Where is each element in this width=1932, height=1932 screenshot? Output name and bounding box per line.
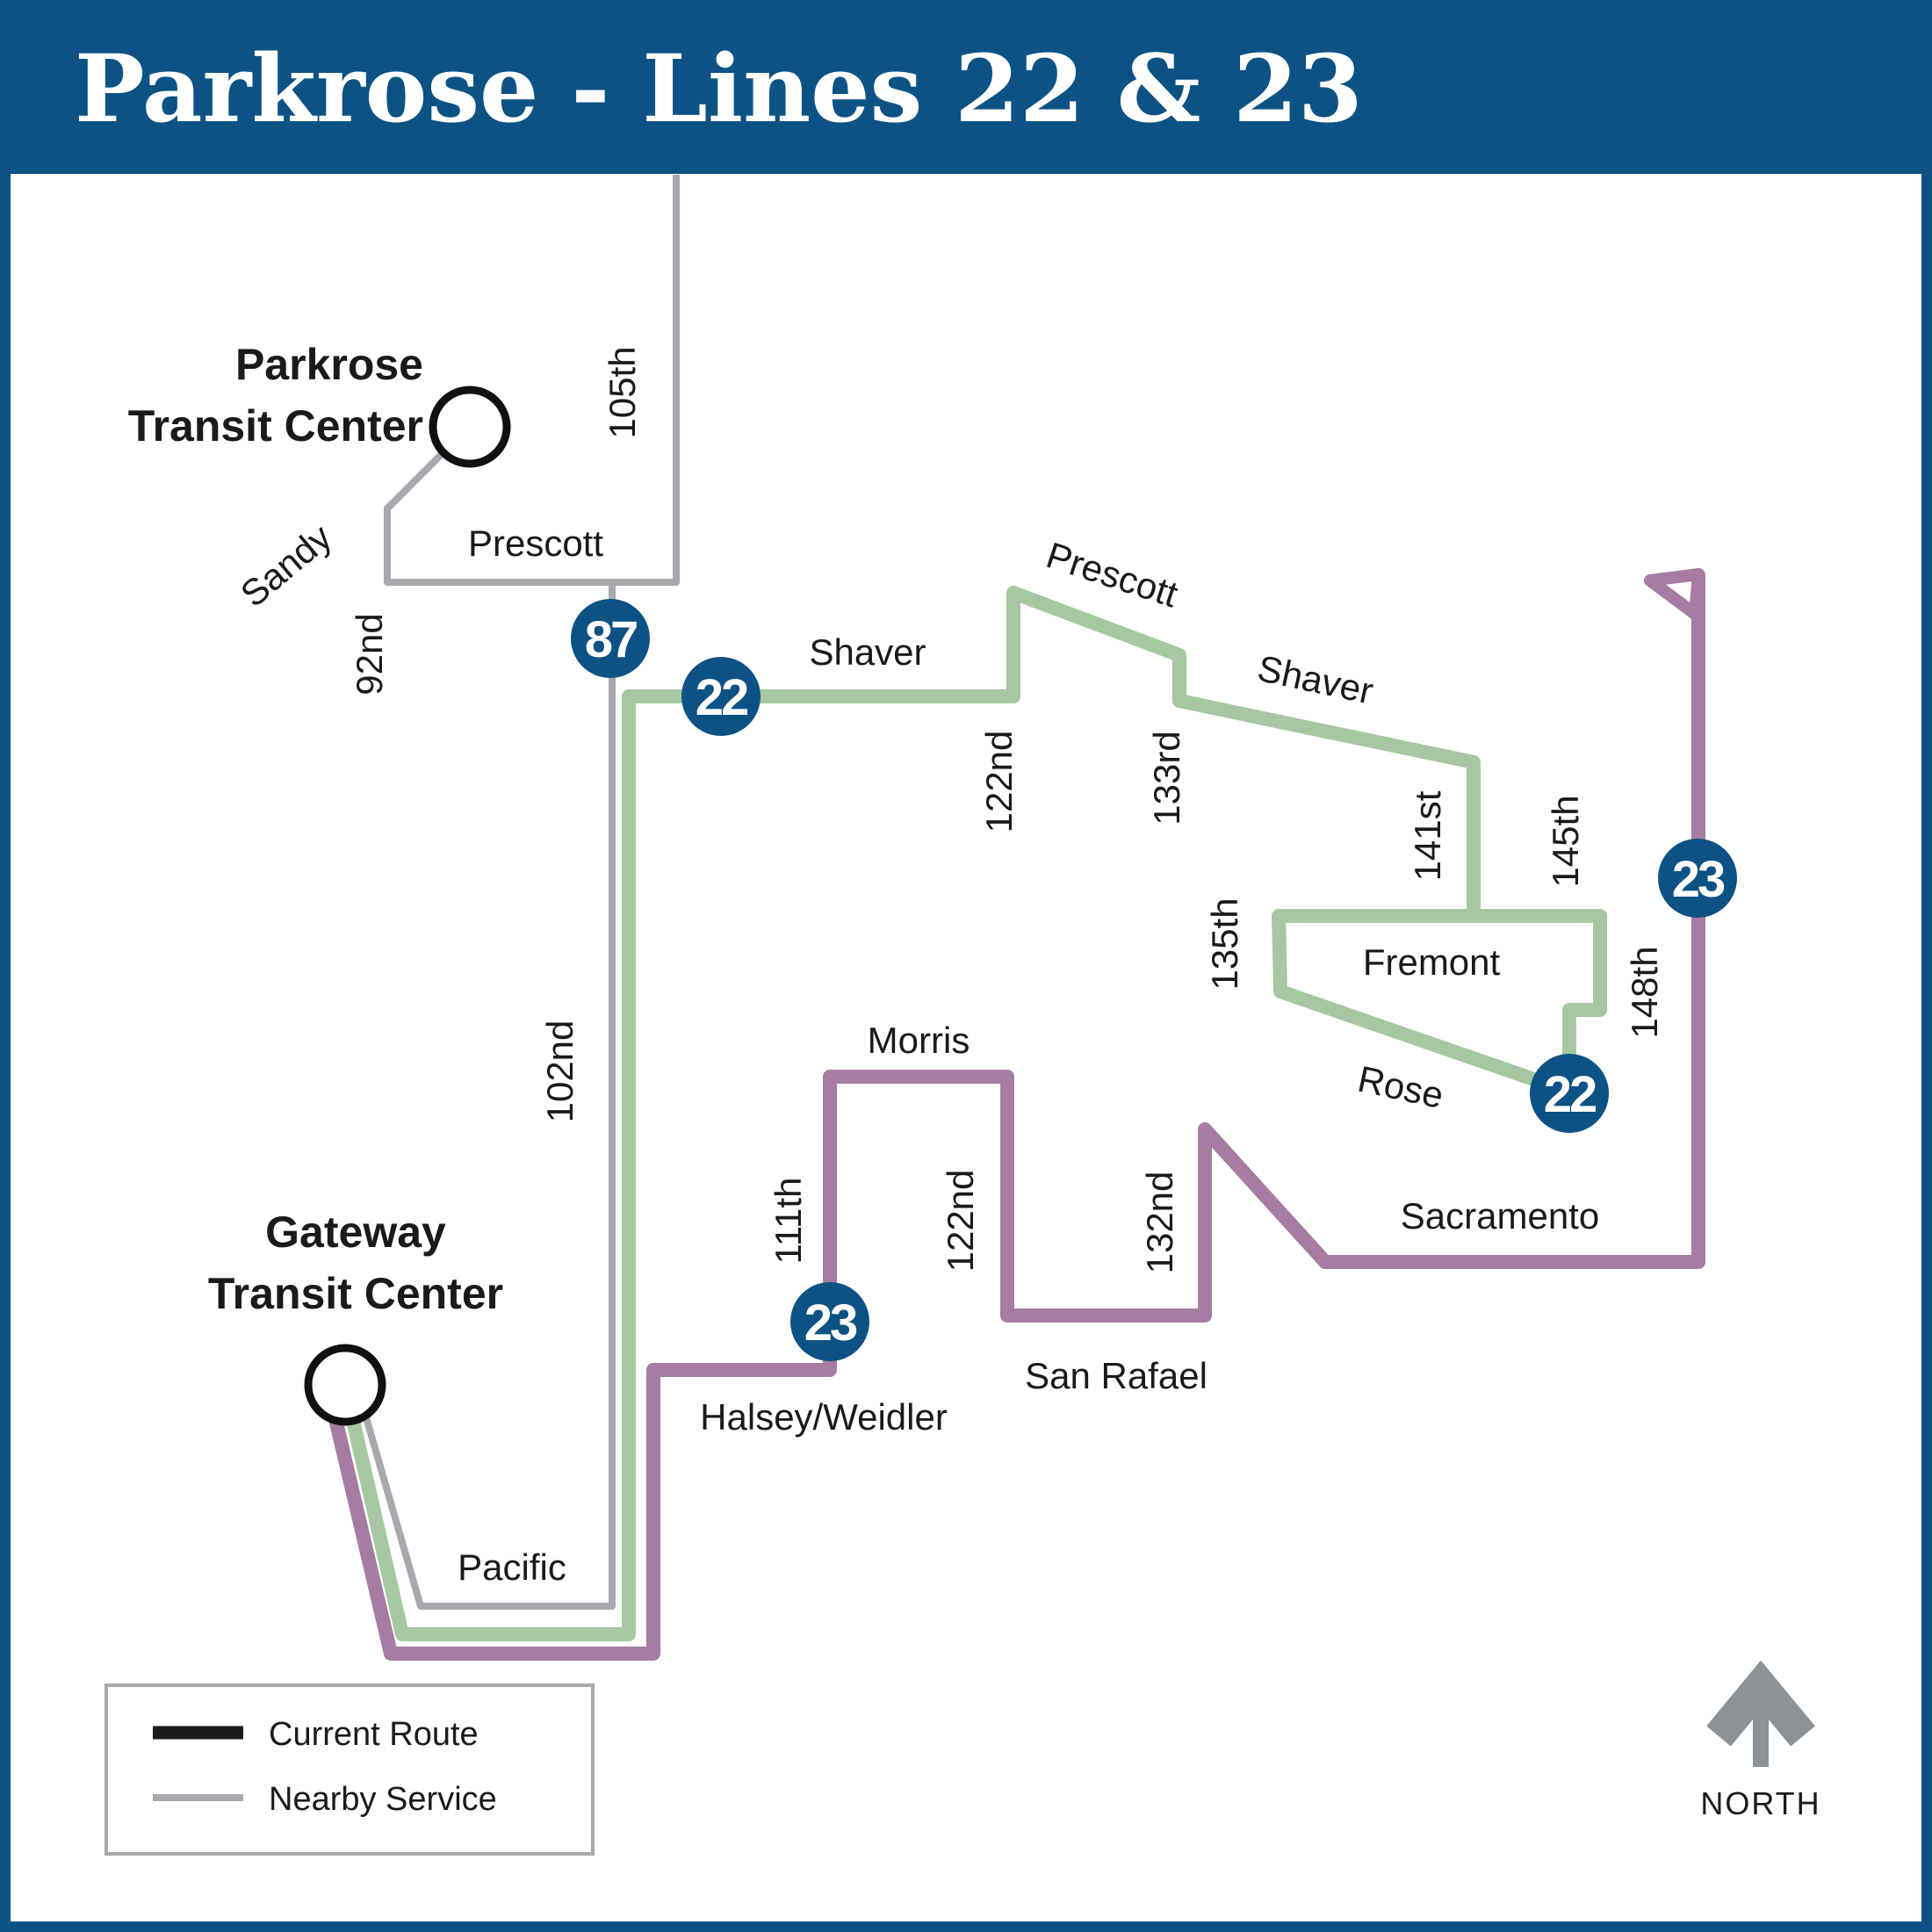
street-132nd: 132nd [1139,1171,1180,1274]
street-105th: 105th [602,346,643,438]
street-sacramento: Sacramento [1401,1195,1599,1236]
street-92nd: 92nd [349,613,390,695]
legend-box [106,1685,593,1854]
legend: Current Route Nearby Service [106,1685,593,1854]
street-122nd-north: 122nd [978,731,1020,833]
badge-22-west-label: 22 [696,669,747,726]
parkrose-transit-center-marker [433,390,507,464]
badge-23-east-label: 23 [1672,851,1725,908]
street-halsey-weidler: Halsey/Weidler [700,1396,948,1438]
gateway-transit-center-marker [308,1348,382,1422]
street-135th: 135th [1204,898,1245,990]
parkrose-tc-label-line2: Transit Center [128,401,423,451]
legend-current-route-label: Current Route [269,1716,479,1753]
route-map: Parkrose - Lines 22 & 23 87 22 22 23 23 … [0,0,1932,1932]
street-pacific: Pacific [458,1546,566,1588]
parkrose-tc-label-line1: Parkrose [235,340,423,389]
street-141st: 141st [1407,790,1448,881]
street-133rd: 133rd [1146,731,1187,825]
gateway-tc-label-line2: Transit Center [208,1269,503,1318]
north-label: NORTH [1700,1785,1820,1821]
badge-23-west-label: 23 [804,1294,857,1352]
street-102nd: 102nd [539,1020,580,1123]
page-title: Parkrose - Lines 22 & 23 [75,33,1363,143]
legend-nearby-service-label: Nearby Service [269,1781,497,1818]
street-122nd-south: 122nd [940,1170,981,1272]
street-san-rafael: San Rafael [1025,1355,1207,1396]
street-prescott-nearby: Prescott [468,523,603,564]
gateway-tc-label-line1: Gateway [265,1207,446,1257]
badge-22-east-label: 22 [1544,1066,1596,1123]
street-shaver-west: Shaver [809,631,926,673]
street-148th: 148th [1624,946,1665,1038]
street-111th: 111th [768,1178,809,1265]
street-fremont: Fremont [1363,941,1501,983]
street-145th: 145th [1545,795,1586,887]
street-morris: Morris [868,1020,970,1061]
badge-87-label: 87 [585,611,637,668]
